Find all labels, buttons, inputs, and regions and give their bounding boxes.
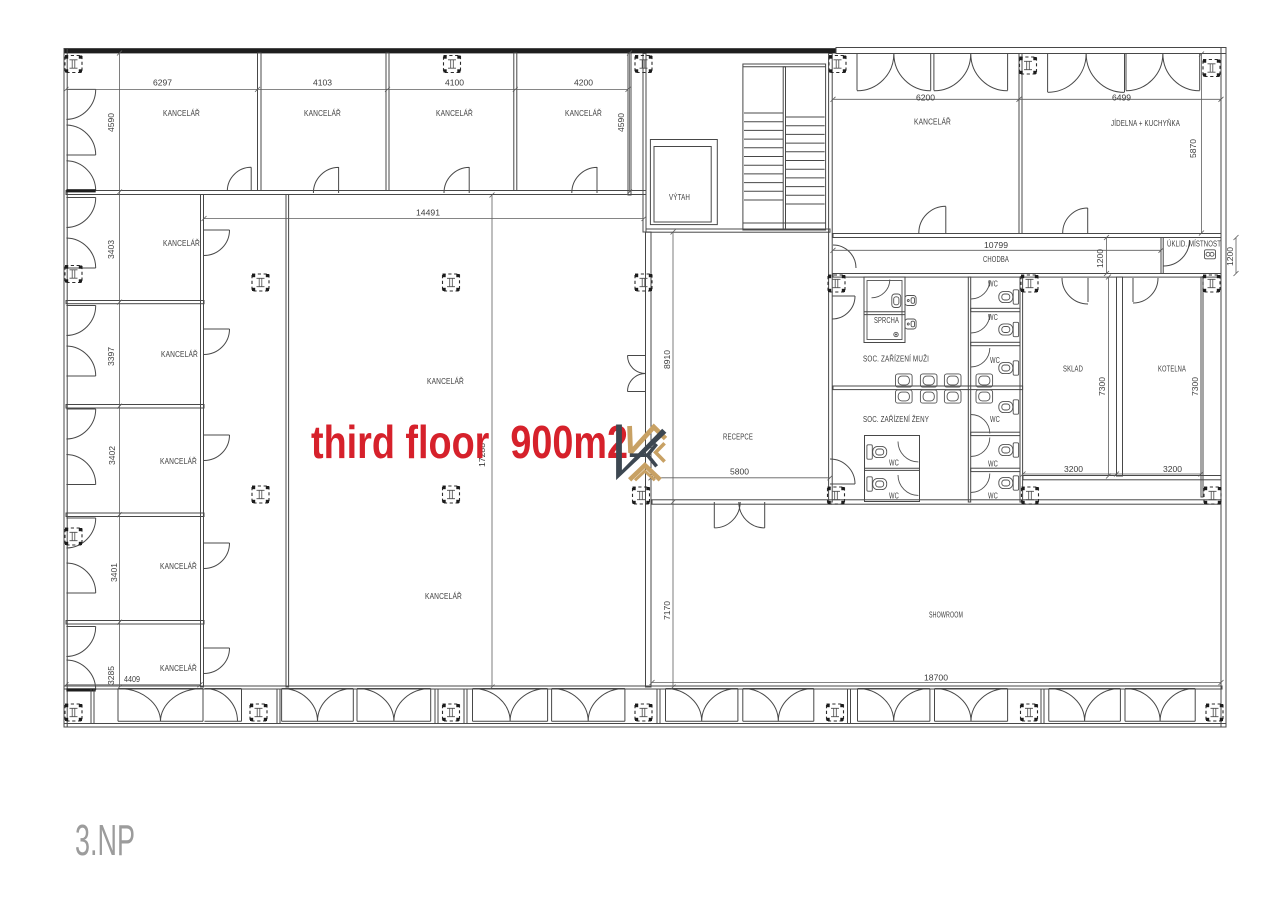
svg-text:4590: 4590 bbox=[616, 113, 626, 132]
svg-text:SKLAD: SKLAD bbox=[1063, 364, 1083, 374]
svg-text:KANCELÁŘ: KANCELÁŘ bbox=[160, 663, 197, 673]
svg-text:third floor 900m2: third floor 900m2 bbox=[311, 416, 628, 468]
svg-text:5800: 5800 bbox=[730, 467, 749, 477]
svg-text:7300: 7300 bbox=[1190, 377, 1200, 396]
svg-text:SOC. ZAŘÍZENÍ MUŽI: SOC. ZAŘÍZENÍ MUŽI bbox=[863, 354, 929, 364]
svg-text:KANCELÁŘ: KANCELÁŘ bbox=[160, 561, 197, 571]
svg-text:1200: 1200 bbox=[1095, 249, 1105, 268]
svg-text:SPRCHA: SPRCHA bbox=[874, 315, 899, 325]
svg-text:KANCELÁŘ: KANCELÁŘ bbox=[914, 117, 951, 127]
svg-text:6200: 6200 bbox=[916, 93, 935, 103]
svg-text:3.NP: 3.NP bbox=[75, 816, 135, 865]
svg-text:3402: 3402 bbox=[107, 446, 117, 465]
svg-text:4590: 4590 bbox=[106, 113, 116, 132]
svg-text:10799: 10799 bbox=[984, 240, 1008, 250]
svg-text:7300: 7300 bbox=[1097, 377, 1107, 396]
svg-text:4100: 4100 bbox=[445, 78, 464, 88]
svg-text:KANCELÁŘ: KANCELÁŘ bbox=[163, 108, 200, 118]
svg-text:VÝTAH: VÝTAH bbox=[669, 192, 690, 202]
svg-text:ÚKLID. MÍSTNOST: ÚKLID. MÍSTNOST bbox=[1167, 239, 1221, 249]
svg-text:3401: 3401 bbox=[109, 563, 119, 582]
svg-text:3200: 3200 bbox=[1163, 464, 1182, 474]
svg-text:KOTELNA: KOTELNA bbox=[1158, 364, 1186, 374]
svg-text:3200: 3200 bbox=[1064, 464, 1083, 474]
svg-text:WC: WC bbox=[988, 459, 998, 469]
svg-text:KANCELÁŘ: KANCELÁŘ bbox=[425, 591, 462, 601]
svg-text:3397: 3397 bbox=[106, 347, 116, 366]
svg-text:KANCELÁŘ: KANCELÁŘ bbox=[427, 376, 464, 386]
svg-text:7170: 7170 bbox=[662, 601, 672, 620]
svg-text:WC: WC bbox=[990, 355, 1000, 365]
svg-text:14491: 14491 bbox=[416, 208, 440, 218]
svg-text:KANCELÁŘ: KANCELÁŘ bbox=[161, 349, 198, 359]
svg-text:CHODBA: CHODBA bbox=[983, 254, 1009, 264]
svg-text:3403: 3403 bbox=[106, 240, 116, 259]
svg-text:WC: WC bbox=[988, 312, 998, 322]
svg-text:18700: 18700 bbox=[924, 673, 948, 683]
svg-text:WC: WC bbox=[990, 414, 1000, 424]
svg-text:6297: 6297 bbox=[153, 78, 172, 88]
svg-text:4409: 4409 bbox=[124, 674, 140, 684]
svg-text:1200: 1200 bbox=[1225, 247, 1235, 266]
svg-text:KANCELÁŘ: KANCELÁŘ bbox=[565, 108, 602, 118]
svg-text:KANCELÁŘ: KANCELÁŘ bbox=[163, 238, 200, 248]
svg-text:JÍDELNA + KUCHYŇKA: JÍDELNA + KUCHYŇKA bbox=[1111, 118, 1180, 128]
svg-text:8910: 8910 bbox=[662, 350, 672, 369]
svg-text:WC: WC bbox=[889, 458, 899, 468]
svg-text:4200: 4200 bbox=[574, 78, 593, 88]
svg-text:KANCELÁŘ: KANCELÁŘ bbox=[304, 108, 341, 118]
svg-text:KANCELÁŘ: KANCELÁŘ bbox=[436, 108, 473, 118]
svg-text:WC: WC bbox=[889, 491, 899, 501]
svg-text:6499: 6499 bbox=[1112, 93, 1131, 103]
svg-text:SHOWROOM: SHOWROOM bbox=[929, 610, 963, 620]
svg-text:3285: 3285 bbox=[106, 666, 116, 685]
svg-text:KANCELÁŘ: KANCELÁŘ bbox=[160, 456, 197, 466]
svg-text:WC: WC bbox=[988, 279, 998, 289]
svg-text:4103: 4103 bbox=[313, 78, 332, 88]
svg-text:RECEPCE: RECEPCE bbox=[723, 432, 753, 442]
svg-text:WC: WC bbox=[988, 491, 998, 501]
svg-text:5870: 5870 bbox=[1188, 139, 1198, 158]
svg-text:SOC. ZAŘÍZENÍ ŽENY: SOC. ZAŘÍZENÍ ŽENY bbox=[863, 414, 929, 424]
